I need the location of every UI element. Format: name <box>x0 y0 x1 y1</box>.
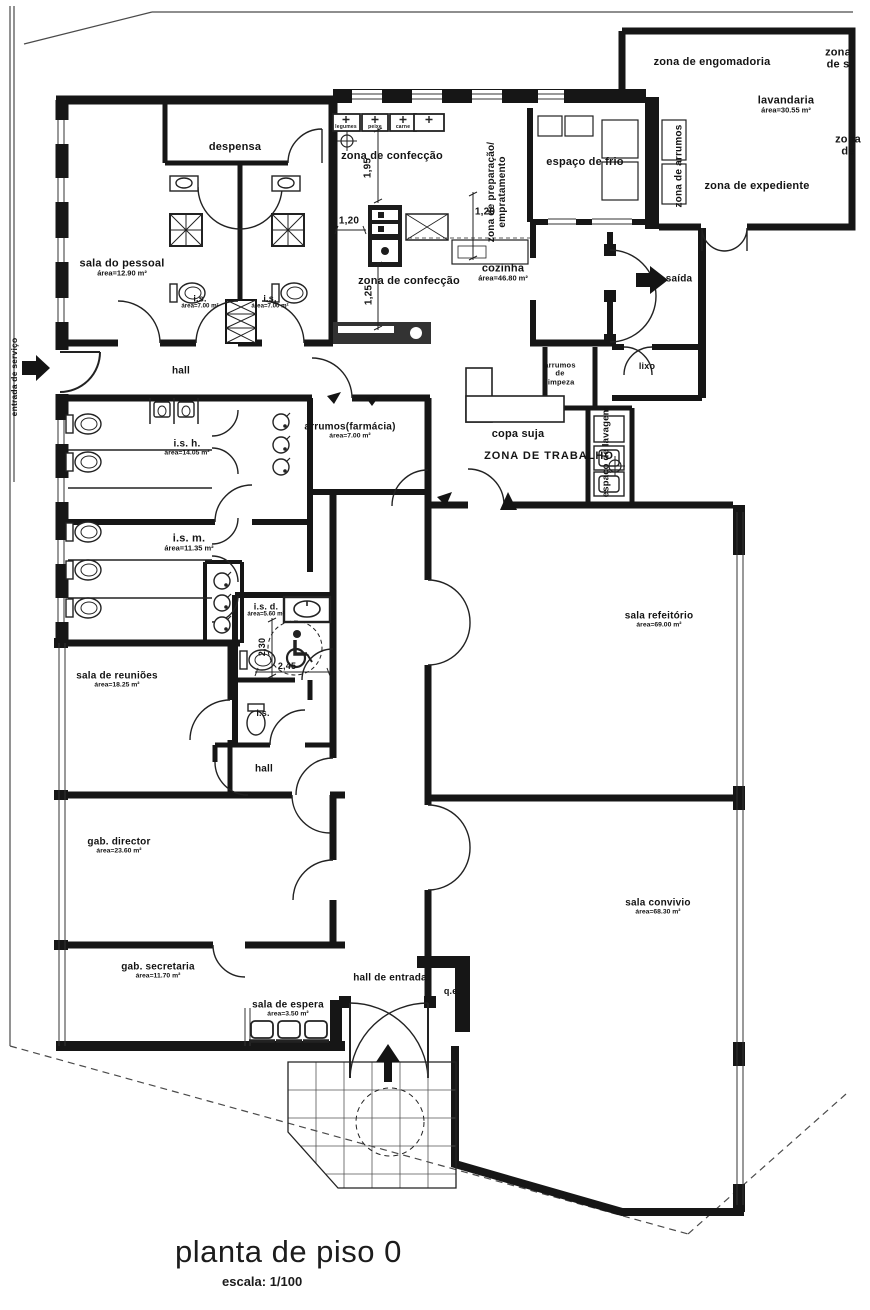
toilet-vertical <box>247 704 265 735</box>
exit-arrow-icon <box>636 266 668 294</box>
floor-plan-sheet: zona de engomadoriazona de slavandariaár… <box>0 0 870 1310</box>
wash-area-sinks <box>594 416 624 496</box>
flow-arrow-icon <box>327 392 341 404</box>
cold-room-shelves <box>538 116 686 204</box>
waiting-chairs <box>249 1021 329 1041</box>
entrance-porch <box>280 1050 460 1200</box>
floor-plan-drawing <box>0 0 870 1310</box>
doors <box>60 129 747 1078</box>
isd-sink <box>284 597 330 622</box>
walls <box>56 31 852 1212</box>
plan-scale: escala: 1/100 <box>222 1274 302 1289</box>
crosshair-symbol <box>337 131 357 151</box>
urinals <box>150 398 198 424</box>
service-entrance-arrow-icon <box>22 355 50 381</box>
goods-boxes <box>333 114 444 131</box>
bathroom-sinks <box>170 176 300 191</box>
entrance-arrow-icon <box>376 1044 400 1082</box>
flow-arrows <box>22 266 668 1082</box>
plan-title: planta de piso 0 <box>175 1234 402 1270</box>
copa-suja-counter <box>466 368 564 422</box>
